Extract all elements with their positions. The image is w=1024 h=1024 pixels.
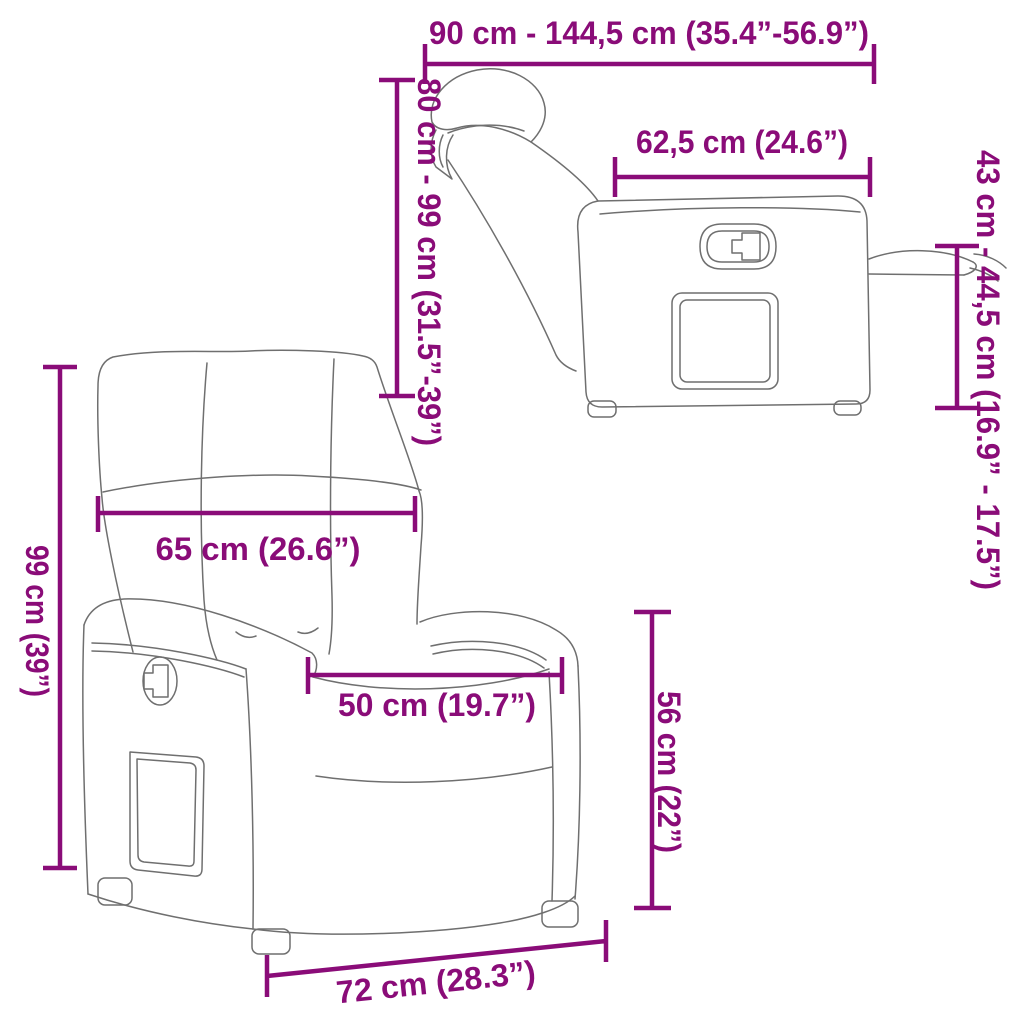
front-side-pocket-inner <box>137 759 196 866</box>
dim-side-seat-depth: 62,5 cm (24.6”) <box>615 124 870 197</box>
side-backrest-inner-edge <box>531 142 598 201</box>
dimension-annotations: 90 cm - 144,5 cm (35.4”-56.9”) 80 cm - 9… <box>19 15 1006 1010</box>
side-pocket-outer <box>672 293 778 389</box>
side-view-chair-drawing <box>431 69 1006 417</box>
dim-label-side-height-range: 80 cm - 99 cm (31.5”-39”) <box>411 78 447 446</box>
product-dimensions-diagram: 90 cm - 144,5 cm (35.4”-56.9”) 80 cm - 9… <box>0 0 1024 1024</box>
front-left-arm-bottom <box>88 894 253 929</box>
dim-front-seat-width: 50 cm (19.7”) <box>308 657 562 723</box>
dim-side-length-range: 90 cm - 144,5 cm (35.4”-56.9”) <box>425 15 874 84</box>
front-side-pocket-outer <box>130 752 204 876</box>
front-view-chair-drawing <box>83 350 580 954</box>
front-backrest-seam-right <box>329 359 334 654</box>
front-left-arm-top <box>84 599 317 677</box>
side-headrest-pillow <box>431 69 545 142</box>
side-foot-right <box>834 401 861 415</box>
front-right-arm-right-edge <box>575 666 580 899</box>
dim-label-front-seat-height: 56 cm (22”) <box>651 691 687 853</box>
front-base-bottom <box>253 896 575 934</box>
recline-handle-front-keyhole <box>144 665 168 697</box>
dim-front-backrest-width: 65 cm (26.6”) <box>98 496 415 567</box>
recline-handle-side-keyhole <box>732 233 760 260</box>
side-footrest-bottom <box>869 274 964 275</box>
dim-label-front-total-height: 99 cm (39”) <box>19 545 55 697</box>
front-left-arm-right-edge <box>246 669 253 929</box>
side-pocket-inner <box>680 300 770 382</box>
front-seat-front-edge <box>316 767 552 782</box>
front-left-arm-left-edge <box>83 625 88 894</box>
dim-front-seat-height: 56 cm (22”) <box>634 612 687 908</box>
front-right-arm-top <box>420 612 578 666</box>
dim-front-total-height: 99 cm (39”) <box>19 367 77 868</box>
front-right-arm-inner-edge <box>549 672 553 901</box>
front-right-arm-seam <box>431 641 546 668</box>
dim-side-height-range: 80 cm - 99 cm (31.5”-39”) <box>379 78 447 446</box>
dim-label-front-base-width: 72 cm (28.3”) <box>335 954 538 1011</box>
dim-label-side-seat-depth: 62,5 cm (24.6”) <box>636 124 848 160</box>
front-foot-right <box>542 901 578 927</box>
side-body-top-seam <box>600 208 860 214</box>
recline-handle-front <box>143 657 177 705</box>
dim-label-side-footrest-height: 43 cm - 44,5 cm (16.9” - 17.5”) <box>970 150 1006 590</box>
front-headrest-seam <box>103 475 421 492</box>
dim-label-front-seat-width: 50 cm (19.7”) <box>338 687 536 723</box>
side-foot-left <box>588 401 616 417</box>
dim-label-front-backrest-width: 65 cm (26.6”) <box>156 531 361 567</box>
front-backrest-outline <box>98 350 423 652</box>
side-body-outline <box>578 196 870 407</box>
side-backrest-outer-edge <box>448 160 576 371</box>
front-seat-back-crease <box>313 669 549 689</box>
front-foot-left <box>98 878 132 905</box>
dim-side-footrest-height: 43 cm - 44,5 cm (16.9” - 17.5”) <box>935 150 1006 590</box>
dim-label-side-length-range: 90 cm - 144,5 cm (35.4”-56.9”) <box>429 15 869 51</box>
